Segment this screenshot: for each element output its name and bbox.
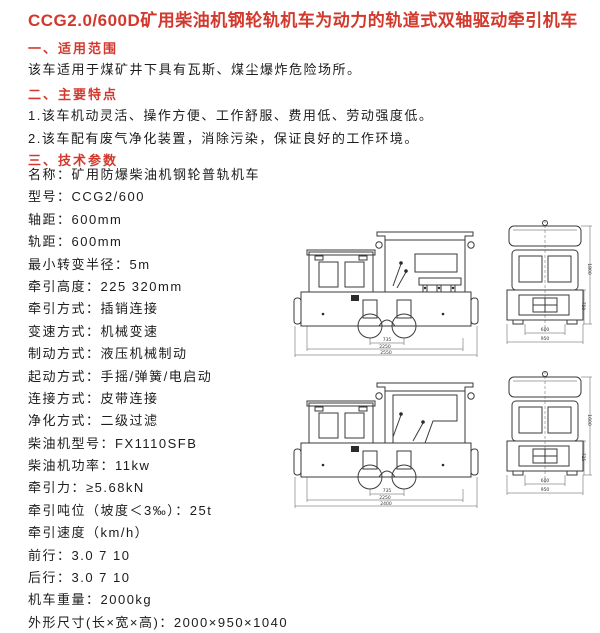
technical-drawings: 735 2250 2550 [293,214,600,506]
section-heading-scope: 一、适用范围 [28,38,118,57]
dimension-label: 725 [580,453,586,462]
dimension-label: 950 [541,487,550,493]
feature-item-2: 2.该车配有废气净化装置，消除污染，保证良好的工作环境。 [28,128,419,147]
spec-line-speed-reverse: 后行：3.0 7 10 [28,567,428,589]
side-view: 735 2250 2400 [294,383,478,508]
spec-line-speed-forward: 前行：3.0 7 10 [28,545,428,567]
dimension-label: 950 [541,336,550,342]
section-heading-features: 二、主要特点 [28,84,118,103]
spec-line-weight: 机车重量：2000kg [28,589,428,611]
technical-drawing-top: 735 2250 2550 [293,214,600,360]
side-view: 735 2250 2550 [294,232,478,357]
spec-line-dimensions: 外形尺寸(长×宽×高)：2000×950×1040 [28,612,428,633]
technical-drawing-bottom: 735 2250 2400 [293,365,600,511]
dimension-label: 2250 [379,495,391,501]
page: CCG2.0/600D矿用柴油机钢轮轨机车为动力的轨道式双轴驱动牵引机车 一、适… [0,0,600,633]
dimension-label: 600 [541,327,550,333]
dimension-label: 735 [383,488,392,494]
dimension-label: 2400 [380,501,392,507]
spec-line-speed-heading: 牵引速度（km/h） [28,522,428,544]
page-title: CCG2.0/600D矿用柴油机钢轮轨机车为动力的轨道式双轴驱动牵引机车 [28,6,588,31]
spec-line-name: 名称：矿用防爆柴油机钢轮普轨机车 [28,164,428,186]
scope-body: 该车适用于煤矿井下具有瓦斯、煤尘爆炸危险场所。 [28,59,362,78]
dimension-label: 2250 [379,344,391,350]
feature-item-1: 1.该车机动灵活、操作方便、工作舒服、费用低、劳动强度低。 [28,105,433,124]
dimension-label: 2550 [380,350,392,356]
dimension-label: 600 [541,478,550,484]
front-view: 600 950 1800 750 [507,220,592,344]
dimension-label: 1600 [586,414,592,426]
dimension-label: 1800 [586,263,592,275]
spec-line-model: 型号：CCG2/600 [28,186,428,208]
dimension-label: 735 [383,337,392,343]
front-view: 600 950 1600 725 [507,371,592,495]
dimension-label: 750 [580,302,586,311]
